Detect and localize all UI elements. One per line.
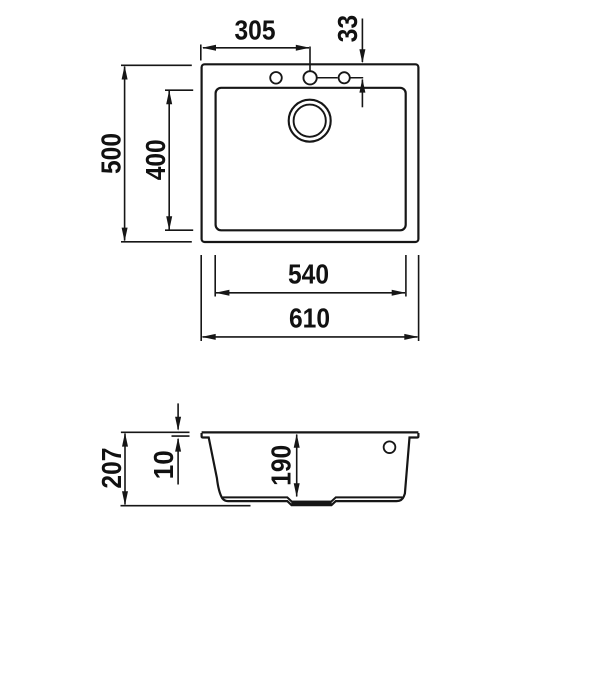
svg-text:610: 610 <box>289 303 330 334</box>
svg-text:10: 10 <box>148 450 179 479</box>
svg-text:400: 400 <box>140 139 171 180</box>
svg-text:500: 500 <box>95 133 126 174</box>
svg-text:305: 305 <box>235 15 276 46</box>
svg-text:540: 540 <box>288 258 329 289</box>
svg-text:207: 207 <box>96 448 127 489</box>
svg-text:190: 190 <box>265 445 296 486</box>
svg-text:33: 33 <box>332 15 363 42</box>
